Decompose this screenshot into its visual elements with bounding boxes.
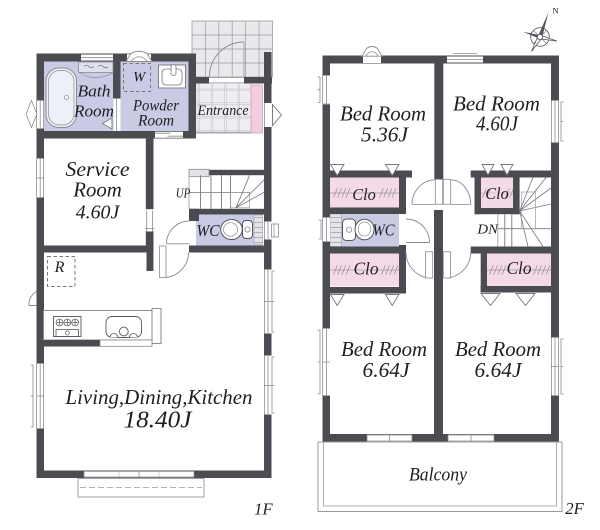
svg-text:Room: Room (72, 178, 121, 202)
svg-text:Entrance: Entrance (197, 103, 249, 119)
svg-text:1F: 1F (254, 500, 273, 519)
svg-text:N: N (553, 6, 559, 16)
svg-text:Balcony: Balcony (409, 465, 468, 486)
svg-text:Room: Room (137, 112, 174, 129)
svg-text:Clo: Clo (354, 259, 379, 279)
svg-text:4.60J: 4.60J (476, 112, 520, 136)
svg-text:4.60J: 4.60J (76, 202, 121, 224)
svg-text:Bath: Bath (78, 82, 111, 101)
svg-text:W: W (133, 69, 147, 85)
svg-text:Room: Room (73, 102, 114, 121)
svg-text:WC: WC (197, 221, 221, 240)
svg-text:6.64J: 6.64J (475, 358, 524, 382)
svg-text:Living,Dining,Kitchen: Living,Dining,Kitchen (65, 385, 253, 409)
svg-text:Clo: Clo (507, 258, 532, 278)
svg-text:18.40J: 18.40J (124, 408, 193, 434)
svg-text:5.36J: 5.36J (361, 123, 410, 147)
svg-text:Clo: Clo (485, 184, 509, 203)
svg-text:6.64J: 6.64J (363, 358, 412, 382)
svg-text:WC: WC (373, 221, 396, 240)
svg-text:R: R (54, 259, 65, 276)
svg-text:Clo: Clo (352, 185, 376, 204)
svg-text:UP: UP (176, 186, 191, 201)
svg-text:DN: DN (476, 223, 498, 238)
svg-text:2F: 2F (565, 499, 584, 518)
